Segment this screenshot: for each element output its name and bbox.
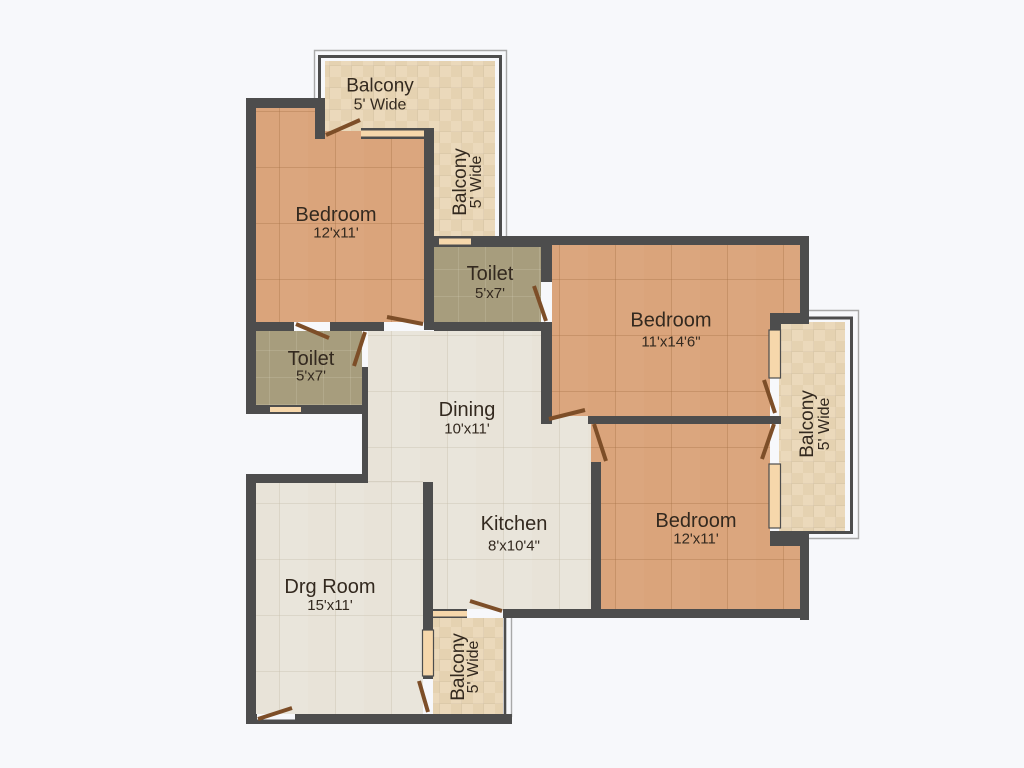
svg-text:12'x11': 12'x11' [673, 531, 719, 548]
svg-text:Bedroom: Bedroom [630, 310, 711, 332]
svg-text:5'x7': 5'x7' [475, 285, 505, 302]
svg-text:15'x11': 15'x11' [307, 597, 353, 614]
svg-text:12'x11': 12'x11' [313, 225, 359, 242]
svg-text:5'x7': 5'x7' [296, 368, 326, 385]
svg-text:Bedroom: Bedroom [295, 204, 376, 226]
svg-text:Dining: Dining [439, 399, 496, 421]
svg-text:Drg Room: Drg Room [284, 576, 375, 598]
svg-text:Kitchen: Kitchen [481, 513, 548, 535]
svg-text:Toilet: Toilet [467, 263, 514, 285]
svg-text:10'x11': 10'x11' [444, 421, 490, 438]
svg-text:Bedroom: Bedroom [655, 510, 736, 532]
svg-text:8'x10'4": 8'x10'4" [488, 538, 540, 555]
svg-text:Balcony: Balcony [346, 76, 414, 97]
svg-text:5' Wide: 5' Wide [465, 640, 482, 693]
svg-text:5' Wide: 5' Wide [816, 397, 833, 450]
svg-text:11'x14'6": 11'x14'6" [641, 334, 700, 351]
svg-text:Balcony: Balcony [797, 390, 818, 458]
svg-text:5' Wide: 5' Wide [468, 155, 485, 208]
svg-text:5' Wide: 5' Wide [354, 97, 407, 114]
